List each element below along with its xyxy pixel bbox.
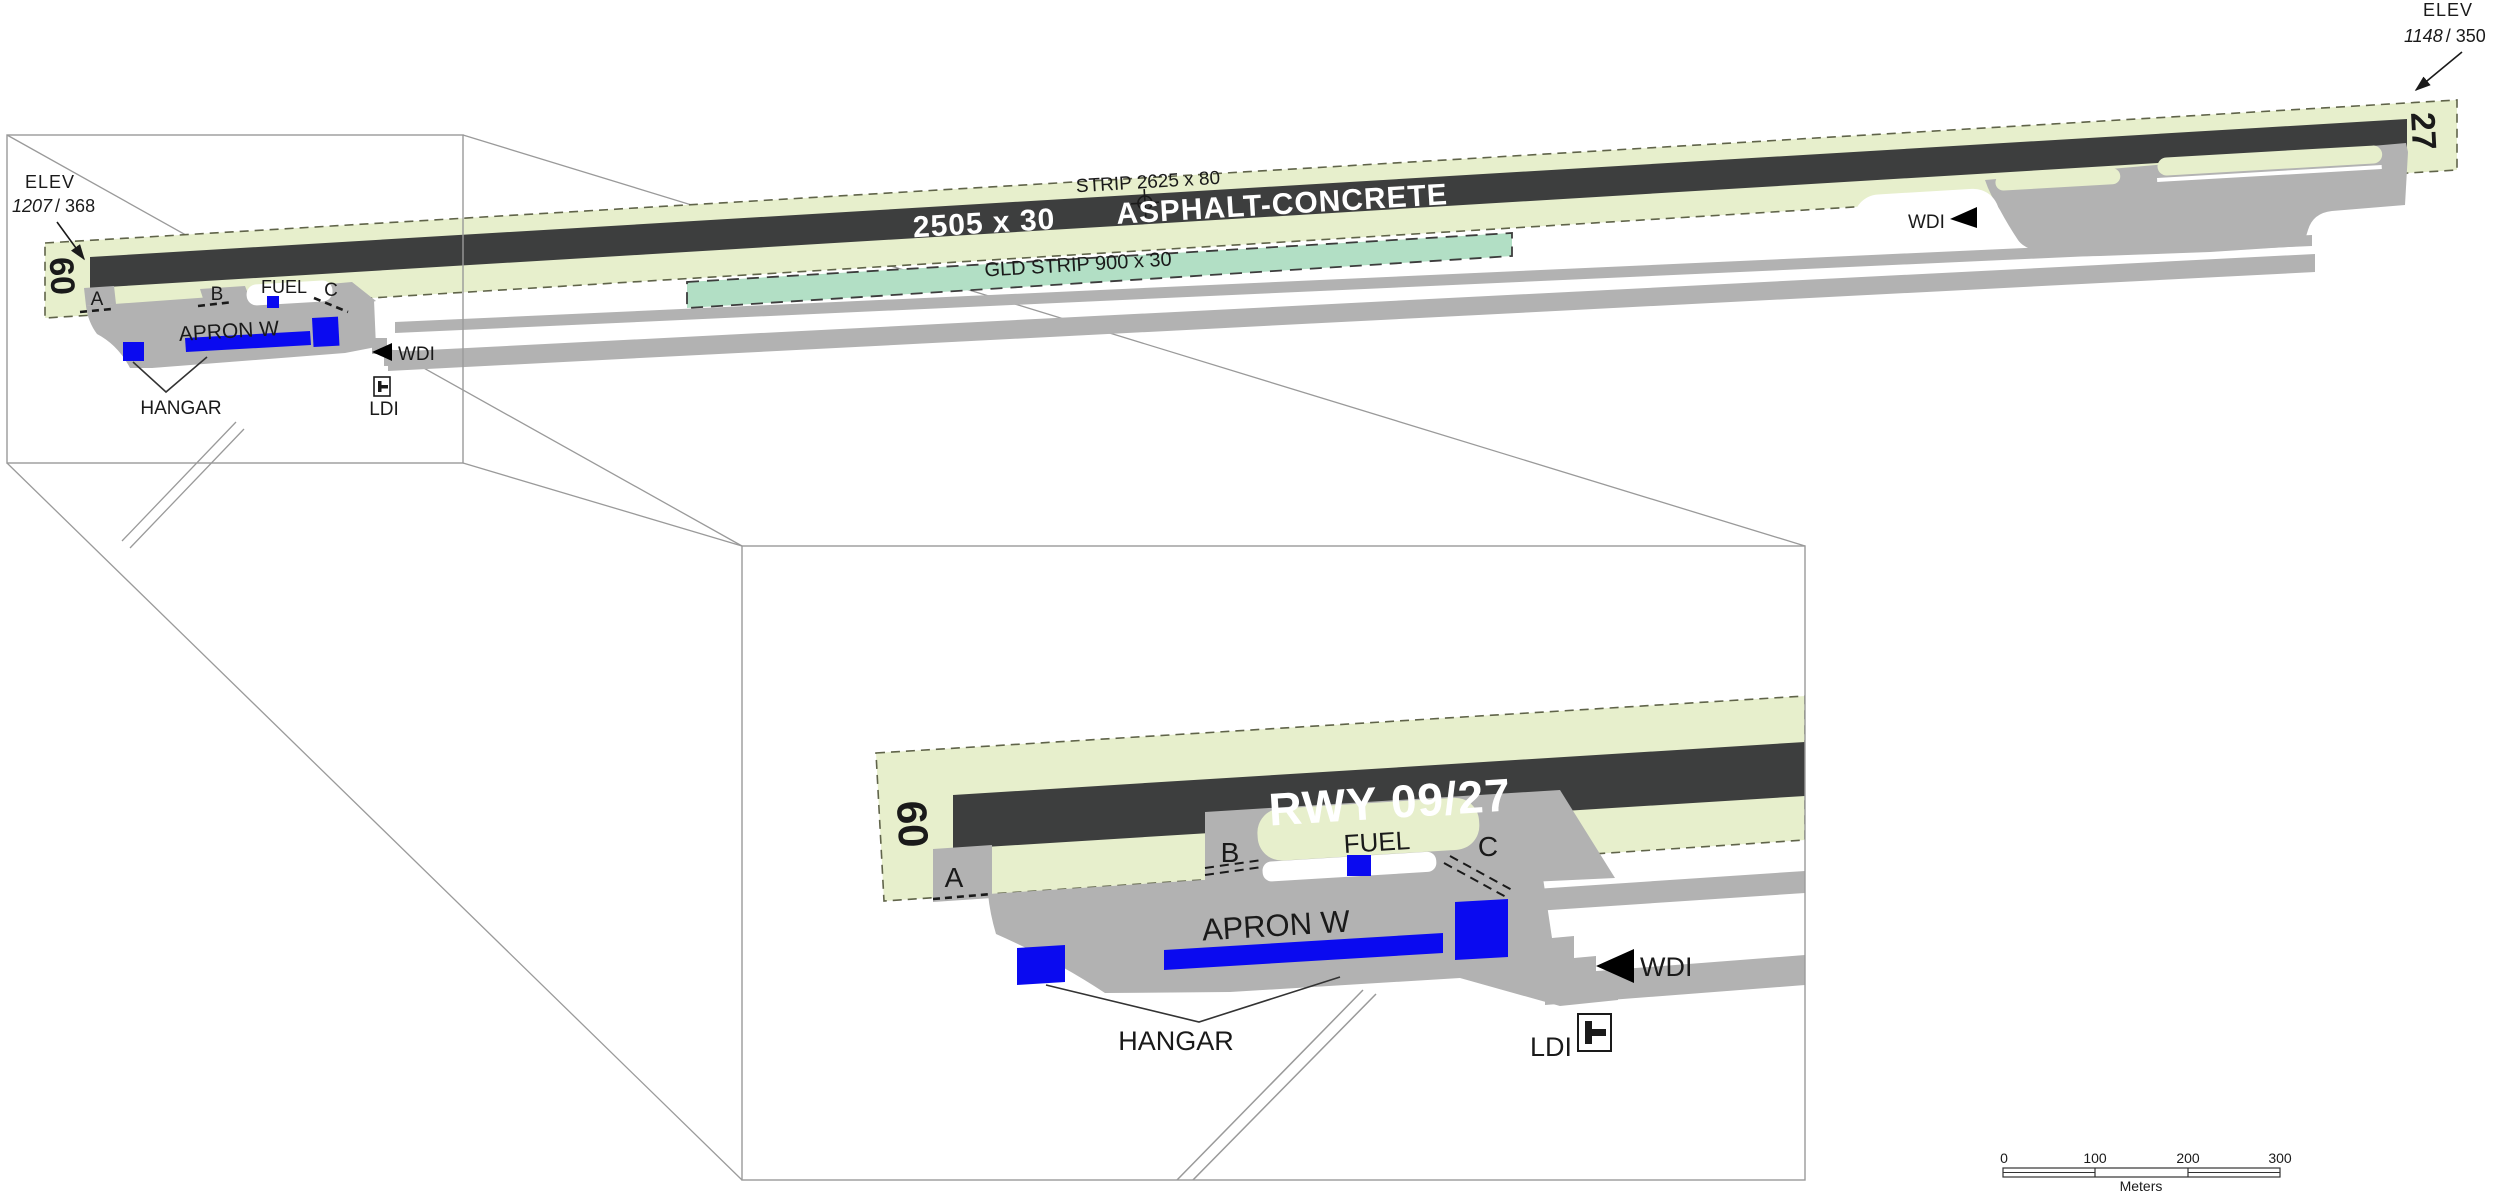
overview-elev-west-label: ELEV [25,172,75,192]
scale-tick-300: 300 [2268,1150,2292,1166]
inset-diagram: RWY 09/27 09 A B C FUEL APRON W HANGAR W… [876,696,1805,1183]
inset-wdi-label: WDI [1640,952,1692,982]
scale-tick-100: 100 [2083,1150,2107,1166]
inset-rwy-designator-west: 09 [888,799,937,848]
inset-taxiway-b-label: B [1221,837,1240,868]
inset-ldi-icon [1578,1014,1611,1051]
overview-elev-east-value: 1148/ 350 [2404,26,2486,46]
overview-fuel-label: FUEL [261,277,307,297]
overview-taxiway-b-label: B [211,284,224,305]
overview-taxiway-a-label: A [91,289,104,310]
scale-unit-label: Meters [2120,1178,2163,1194]
inset-hangar-label: HANGAR [1118,1026,1234,1056]
inset-taxiway-c-label: C [1478,831,1498,862]
inset-ldi-label: LDI [1530,1032,1572,1062]
overview-elev-east-label: ELEV [2423,0,2473,20]
overview-wdi-east-label: WDI [1908,212,1945,233]
overview-wdi-west-label: WDI [398,344,435,365]
overview-elev-west-value: 1207/ 368 [12,196,95,216]
overview-elev-east-arrow [2416,52,2462,90]
overview-rwy-designator-west: 09 [43,256,83,296]
overview-taxiway-c-label: C [324,280,338,301]
overview-fuel-building [267,296,279,308]
scale-tick-0: 0 [2000,1150,2008,1166]
inset-fuel-label: FUEL [1343,825,1411,859]
overview-rwy-designator-east: 27 [2403,111,2443,151]
scale-bar: 0 100 200 300 Meters [2000,1150,2292,1194]
overview-ldi-icon [374,377,390,396]
aerodrome-chart: ELEV 1207/ 368 ELEV 1148/ 350 09 27 2505… [0,0,2500,1195]
overview-ldi-label: LDI [369,399,399,420]
overview-hangar-label: HANGAR [140,398,221,419]
chart-canvas: ELEV 1207/ 368 ELEV 1148/ 350 09 27 2505… [0,0,2500,1195]
scale-tick-200: 200 [2176,1150,2200,1166]
overview-diagram: ELEV 1207/ 368 ELEV 1148/ 350 09 27 2505… [12,0,2486,420]
inset-taxiway-a-label: A [945,862,964,893]
